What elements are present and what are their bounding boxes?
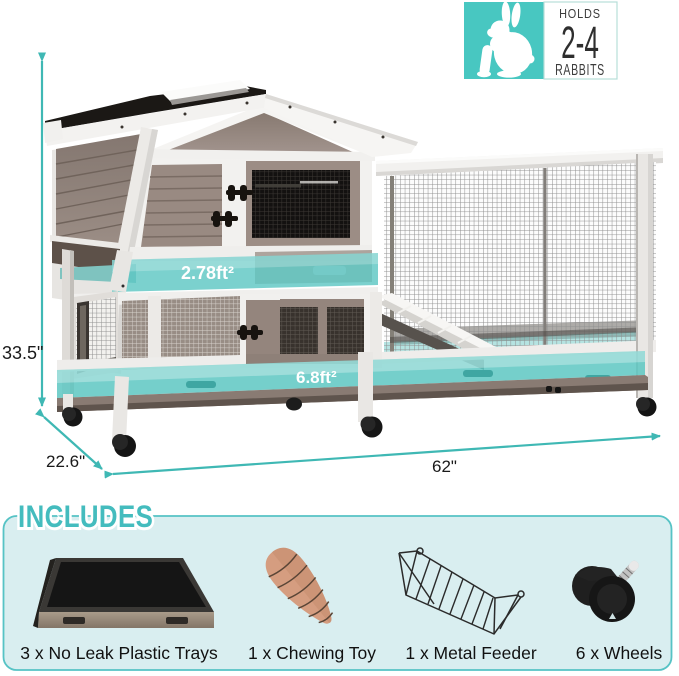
svg-text:2.78ft²: 2.78ft² (181, 263, 234, 283)
svg-text:62": 62" (432, 457, 457, 476)
svg-text:1 x Metal Feeder: 1 x Metal Feeder (405, 643, 536, 663)
svg-text:33.5": 33.5" (2, 343, 43, 363)
svg-text:RABBITS: RABBITS (555, 61, 605, 79)
svg-text:INCLUDES: INCLUDES (18, 500, 153, 535)
svg-text:22.6": 22.6" (46, 452, 85, 471)
svg-text:3 x No Leak Plastic Trays: 3 x No Leak Plastic Trays (20, 643, 218, 663)
svg-text:6.8ft²: 6.8ft² (296, 368, 337, 387)
svg-text:1 x Chewing Toy: 1 x Chewing Toy (248, 643, 376, 663)
svg-text:6 x Wheels: 6 x Wheels (576, 643, 663, 663)
